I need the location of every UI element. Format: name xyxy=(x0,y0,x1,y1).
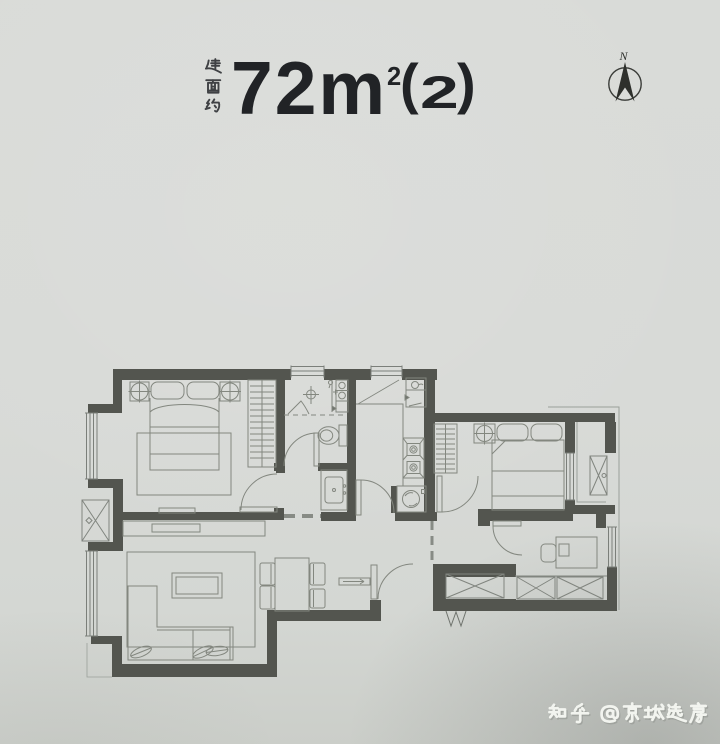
svg-text:N: N xyxy=(619,49,629,63)
